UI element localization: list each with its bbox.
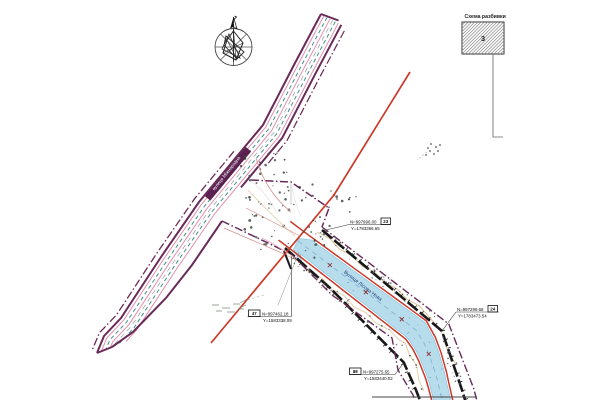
svg-text:Y=1583440.02: Y=1583440.02 (364, 376, 393, 381)
svg-text:N=997299.68: N=997299.68 (457, 307, 484, 312)
svg-text:23: 23 (383, 219, 388, 224)
svg-text:3: 3 (481, 34, 485, 43)
svg-text:Y=1783473.54: Y=1783473.54 (458, 314, 487, 319)
svg-text:88: 88 (353, 369, 358, 374)
svg-text:Y=1583338.09: Y=1583338.09 (263, 318, 292, 323)
svg-text:N=997996.00: N=997996.00 (350, 220, 377, 225)
svg-text:N=997275.65: N=997275.65 (363, 370, 390, 375)
svg-text:24: 24 (490, 306, 495, 311)
svg-text:Y=1783366.65: Y=1783366.65 (351, 226, 380, 231)
svg-text:N=997462.18: N=997462.18 (262, 312, 289, 317)
svg-text:47: 47 (252, 311, 257, 316)
svg-text:Схема разбивки: Схема разбивки (465, 13, 506, 20)
